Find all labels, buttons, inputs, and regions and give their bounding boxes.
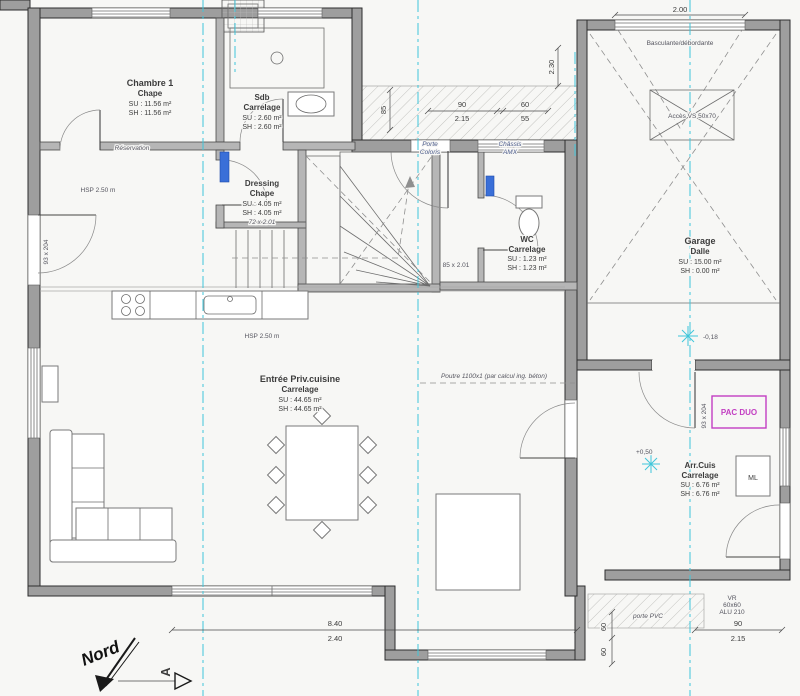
room-garage-sh: SH : 0.00 m² — [680, 268, 720, 275]
door-size-pac: 93 x 204 — [701, 403, 708, 428]
section-label: A — [158, 667, 173, 677]
reservation-note: Réservation — [115, 145, 150, 152]
dim-entry-width: 90 — [458, 100, 466, 109]
room-chambre1-sh: SH : 11.56 m² — [129, 110, 172, 117]
room-dressing-su: SU : 4.05 m² — [242, 201, 282, 208]
radiator — [220, 152, 229, 182]
window-arrcuis-east — [780, 428, 790, 486]
dim-porch-left: 85 — [379, 106, 388, 114]
room-dressing-sh: SH : 4.05 m² — [242, 210, 282, 217]
entry-door-note-2: Coloris — [420, 149, 441, 156]
dim-south-top: 8.40 — [328, 619, 343, 628]
room-garage-su: SU : 15.00 m² — [678, 259, 722, 266]
rear-door-material-label: porte PVC — [632, 613, 663, 620]
toilet-tank — [516, 196, 542, 208]
room-sdb-finish: Carrelage — [244, 103, 281, 112]
bathroom-vanity — [288, 92, 334, 116]
room-arrcuis-su: SU : 6.76 m² — [680, 482, 720, 489]
window-living-west — [28, 348, 40, 438]
dim-back-height: 2.15 — [731, 634, 746, 643]
window-chambre — [92, 8, 170, 18]
room-dressing-name: Dressing — [245, 179, 279, 188]
room-dressing-door: 72 x 2.01 — [249, 219, 276, 226]
room-cuisine-name: Entrée Priv.cuisine — [260, 374, 340, 384]
heat-pump-label: PAC DUO — [721, 408, 757, 417]
door-size-wc: 85 x 2.01 — [443, 262, 470, 269]
dim-porch-right: 2.30 — [547, 60, 556, 75]
level-arrcuis-value: +0,50 — [636, 449, 653, 456]
shutter-note-2: 60x60 — [723, 602, 741, 609]
dim-win-width: 60 — [521, 100, 529, 109]
room-cuisine-sh: SH : 44.65 m² — [278, 406, 322, 413]
room-sdb-sh: SH : 2.60 m² — [242, 124, 282, 131]
crawlspace-hatch-label: Accès VS 50x70 — [668, 113, 716, 120]
wc-duct — [486, 176, 494, 196]
room-label-arrcuis: Arr.Cuis Carrelage SU : 6.76 m² SH : 6.7… — [680, 461, 720, 498]
toilet-bowl — [519, 209, 539, 237]
sideboard — [42, 366, 58, 402]
floor-plan-sheet: Chambre 1 Chape SU : 11.56 m² SH : 11.56… — [0, 0, 800, 696]
room-garage-name: Garage — [684, 236, 715, 246]
dim-back-v1: 60 — [599, 623, 608, 631]
garage-door-type-label: Basculante/débordante — [647, 40, 714, 47]
entry-window-note-1: Châssis — [498, 141, 522, 148]
window-bay-south — [428, 650, 546, 660]
room-wc-finish: Carrelage — [509, 245, 546, 254]
room-arrcuis-finish: Carrelage — [682, 471, 719, 480]
window-living-south-slider — [172, 586, 372, 596]
room-cuisine-finish: Carrelage — [282, 385, 319, 394]
room-chambre1-su: SU : 11.56 m² — [129, 101, 172, 108]
dim-south-bottom: 2.40 — [328, 634, 343, 643]
room-sdb-su: SU : 2.60 m² — [242, 115, 282, 122]
room-wc-su: SU : 1.23 m² — [507, 256, 547, 263]
level-garage-value: -0,18 — [703, 334, 718, 341]
room-sdb-name: Sdb — [254, 93, 269, 102]
room-chambre1-name: Chambre 1 — [127, 78, 174, 88]
window-sdb — [258, 8, 322, 18]
entry-porch-paving — [362, 86, 577, 140]
dim-win-height: 55 — [521, 114, 529, 123]
room-chambre1-finish: Chape — [138, 89, 163, 98]
entry-window-note-2: AMX — [502, 149, 518, 156]
floor-plan-drawing: Chambre 1 Chape SU : 11.56 m² SH : 11.56… — [0, 0, 800, 696]
room-wc-sh: SH : 1.23 m² — [507, 265, 547, 272]
shutter-note-1: VR — [727, 595, 736, 602]
door-size-west: 93 x 204 — [43, 239, 50, 264]
dim-back-v2: 60 — [599, 648, 608, 656]
ceiling-height-upper: HSP 2.50 m — [81, 187, 116, 194]
dim-back-width: 90 — [734, 619, 742, 628]
room-garage-finish: Dalle — [690, 247, 710, 256]
entry-door-note-1: Porte — [422, 141, 438, 148]
washing-machine-label: ML — [748, 475, 758, 482]
ceiling-height-sejour: HSP 2.50 m — [245, 333, 280, 340]
room-arrcuis-name: Arr.Cuis — [684, 461, 716, 470]
room-cuisine-su: SU : 44.65 m² — [278, 397, 322, 404]
kitchen-island — [436, 494, 520, 590]
room-wc-name: WC — [520, 235, 534, 244]
dim-garage-door: 2.00 — [673, 5, 688, 14]
shutter-note-3: ALU 210 — [719, 609, 745, 616]
dim-entry-height: 2.15 — [455, 114, 470, 123]
room-dressing-finish: Chape — [250, 189, 275, 198]
room-arrcuis-sh: SH : 6.76 m² — [680, 491, 720, 498]
beam-note: Poutre 1100x1 (par calcul ing. béton) — [441, 373, 547, 380]
kitchen-counter — [112, 291, 308, 319]
